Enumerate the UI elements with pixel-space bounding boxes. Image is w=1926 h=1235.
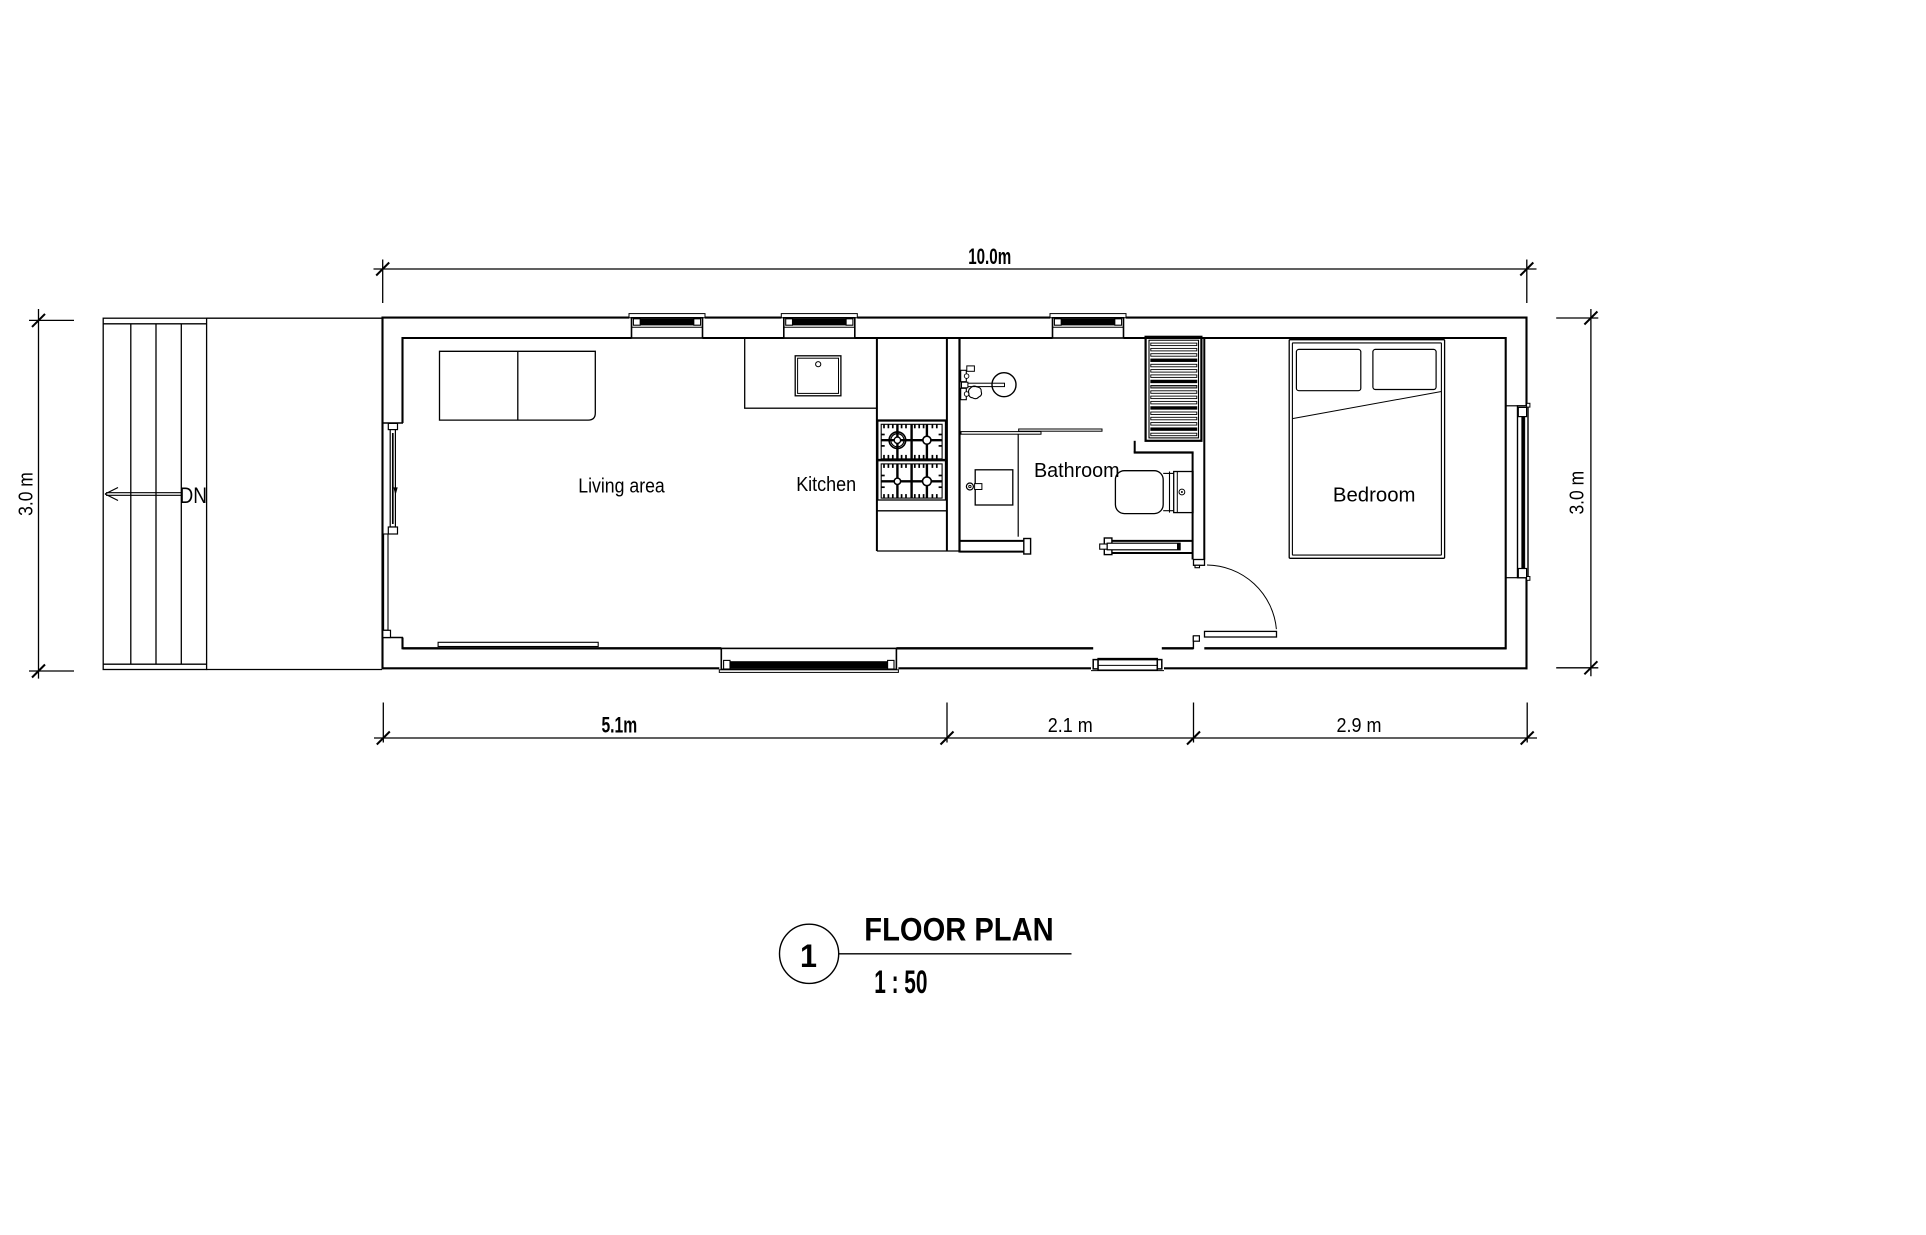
- svg-text:Kitchen: Kitchen: [796, 473, 856, 496]
- svg-text:5.1m: 5.1m: [601, 713, 637, 738]
- svg-text:10.0m: 10.0m: [968, 244, 1011, 269]
- svg-text:1: 1: [800, 938, 817, 974]
- svg-text:2.9 m: 2.9 m: [1337, 714, 1382, 737]
- svg-text:Bathroom: Bathroom: [1034, 459, 1120, 482]
- svg-text:2.1 m: 2.1 m: [1048, 714, 1093, 737]
- svg-text:Bedroom: Bedroom: [1333, 483, 1416, 506]
- svg-text:3.0 m: 3.0 m: [1566, 471, 1589, 515]
- svg-text:1 : 50: 1 : 50: [874, 964, 927, 1000]
- svg-text:3.0 m: 3.0 m: [14, 472, 37, 516]
- svg-text:Living area: Living area: [578, 475, 665, 498]
- svg-text:FLOOR PLAN: FLOOR PLAN: [864, 912, 1053, 948]
- svg-text:DN: DN: [180, 483, 208, 508]
